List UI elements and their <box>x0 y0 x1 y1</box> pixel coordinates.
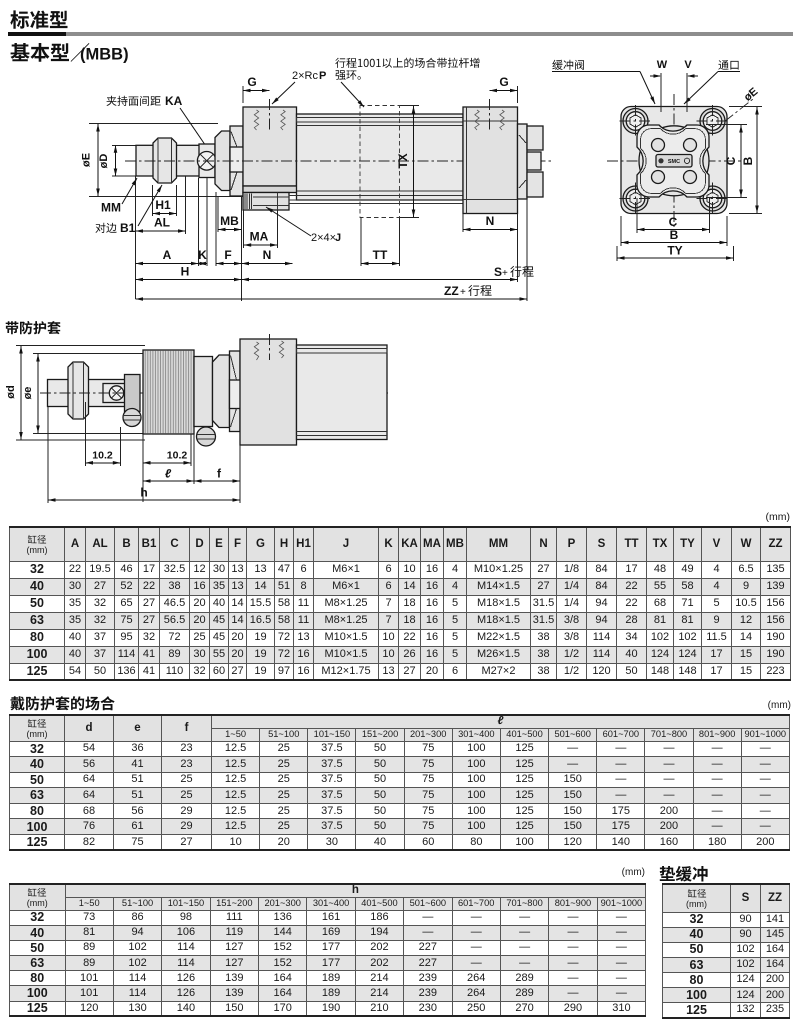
svg-text:A: A <box>163 248 172 262</box>
svg-text:C: C <box>724 156 738 165</box>
svg-text:N: N <box>486 214 495 228</box>
svg-text:SMC: SMC <box>668 159 680 165</box>
svg-text:øE: øE <box>742 86 760 104</box>
svg-text:h: h <box>140 486 147 500</box>
svg-text:+: + <box>460 287 466 298</box>
svg-text:øE: øE <box>81 153 93 167</box>
svg-text:MB: MB <box>220 214 239 228</box>
svg-text:KA: KA <box>165 94 183 108</box>
svg-text:f: f <box>217 467 222 481</box>
svg-text:P: P <box>319 70 326 82</box>
svg-text:øe: øe <box>22 387 34 400</box>
svg-text:N: N <box>263 248 272 262</box>
svg-text:2×Rc: 2×Rc <box>292 70 318 82</box>
svg-text:+: + <box>502 268 508 279</box>
svg-text:C: C <box>669 215 678 229</box>
svg-text:B: B <box>741 156 755 165</box>
svg-text:H: H <box>181 265 190 279</box>
svg-text:V: V <box>684 59 692 71</box>
svg-text:G: G <box>247 75 256 89</box>
svg-text:MA: MA <box>250 230 269 244</box>
svg-text:øD: øD <box>98 154 110 169</box>
svg-text:ℓ: ℓ <box>165 467 172 481</box>
svg-text:F: F <box>224 248 231 262</box>
svg-text:TT: TT <box>373 248 388 262</box>
svg-text:2×4×: 2×4× <box>311 232 336 244</box>
svg-text:S: S <box>494 265 502 279</box>
svg-text:TY: TY <box>667 244 682 258</box>
svg-text:AL: AL <box>154 216 170 230</box>
svg-text:W: W <box>657 59 668 71</box>
svg-text:ZZ: ZZ <box>444 284 459 298</box>
svg-text:H1: H1 <box>155 198 171 212</box>
svg-text:G: G <box>499 75 508 89</box>
svg-text:TX: TX <box>396 153 410 168</box>
svg-text:B: B <box>670 228 679 242</box>
svg-text:ød: ød <box>5 385 17 398</box>
svg-text:MM: MM <box>101 201 121 215</box>
svg-text:B1: B1 <box>120 221 136 235</box>
svg-text:10.2: 10.2 <box>167 450 188 462</box>
svg-text:J: J <box>335 232 341 244</box>
svg-text:K: K <box>198 248 207 262</box>
svg-text:10.2: 10.2 <box>92 450 113 462</box>
